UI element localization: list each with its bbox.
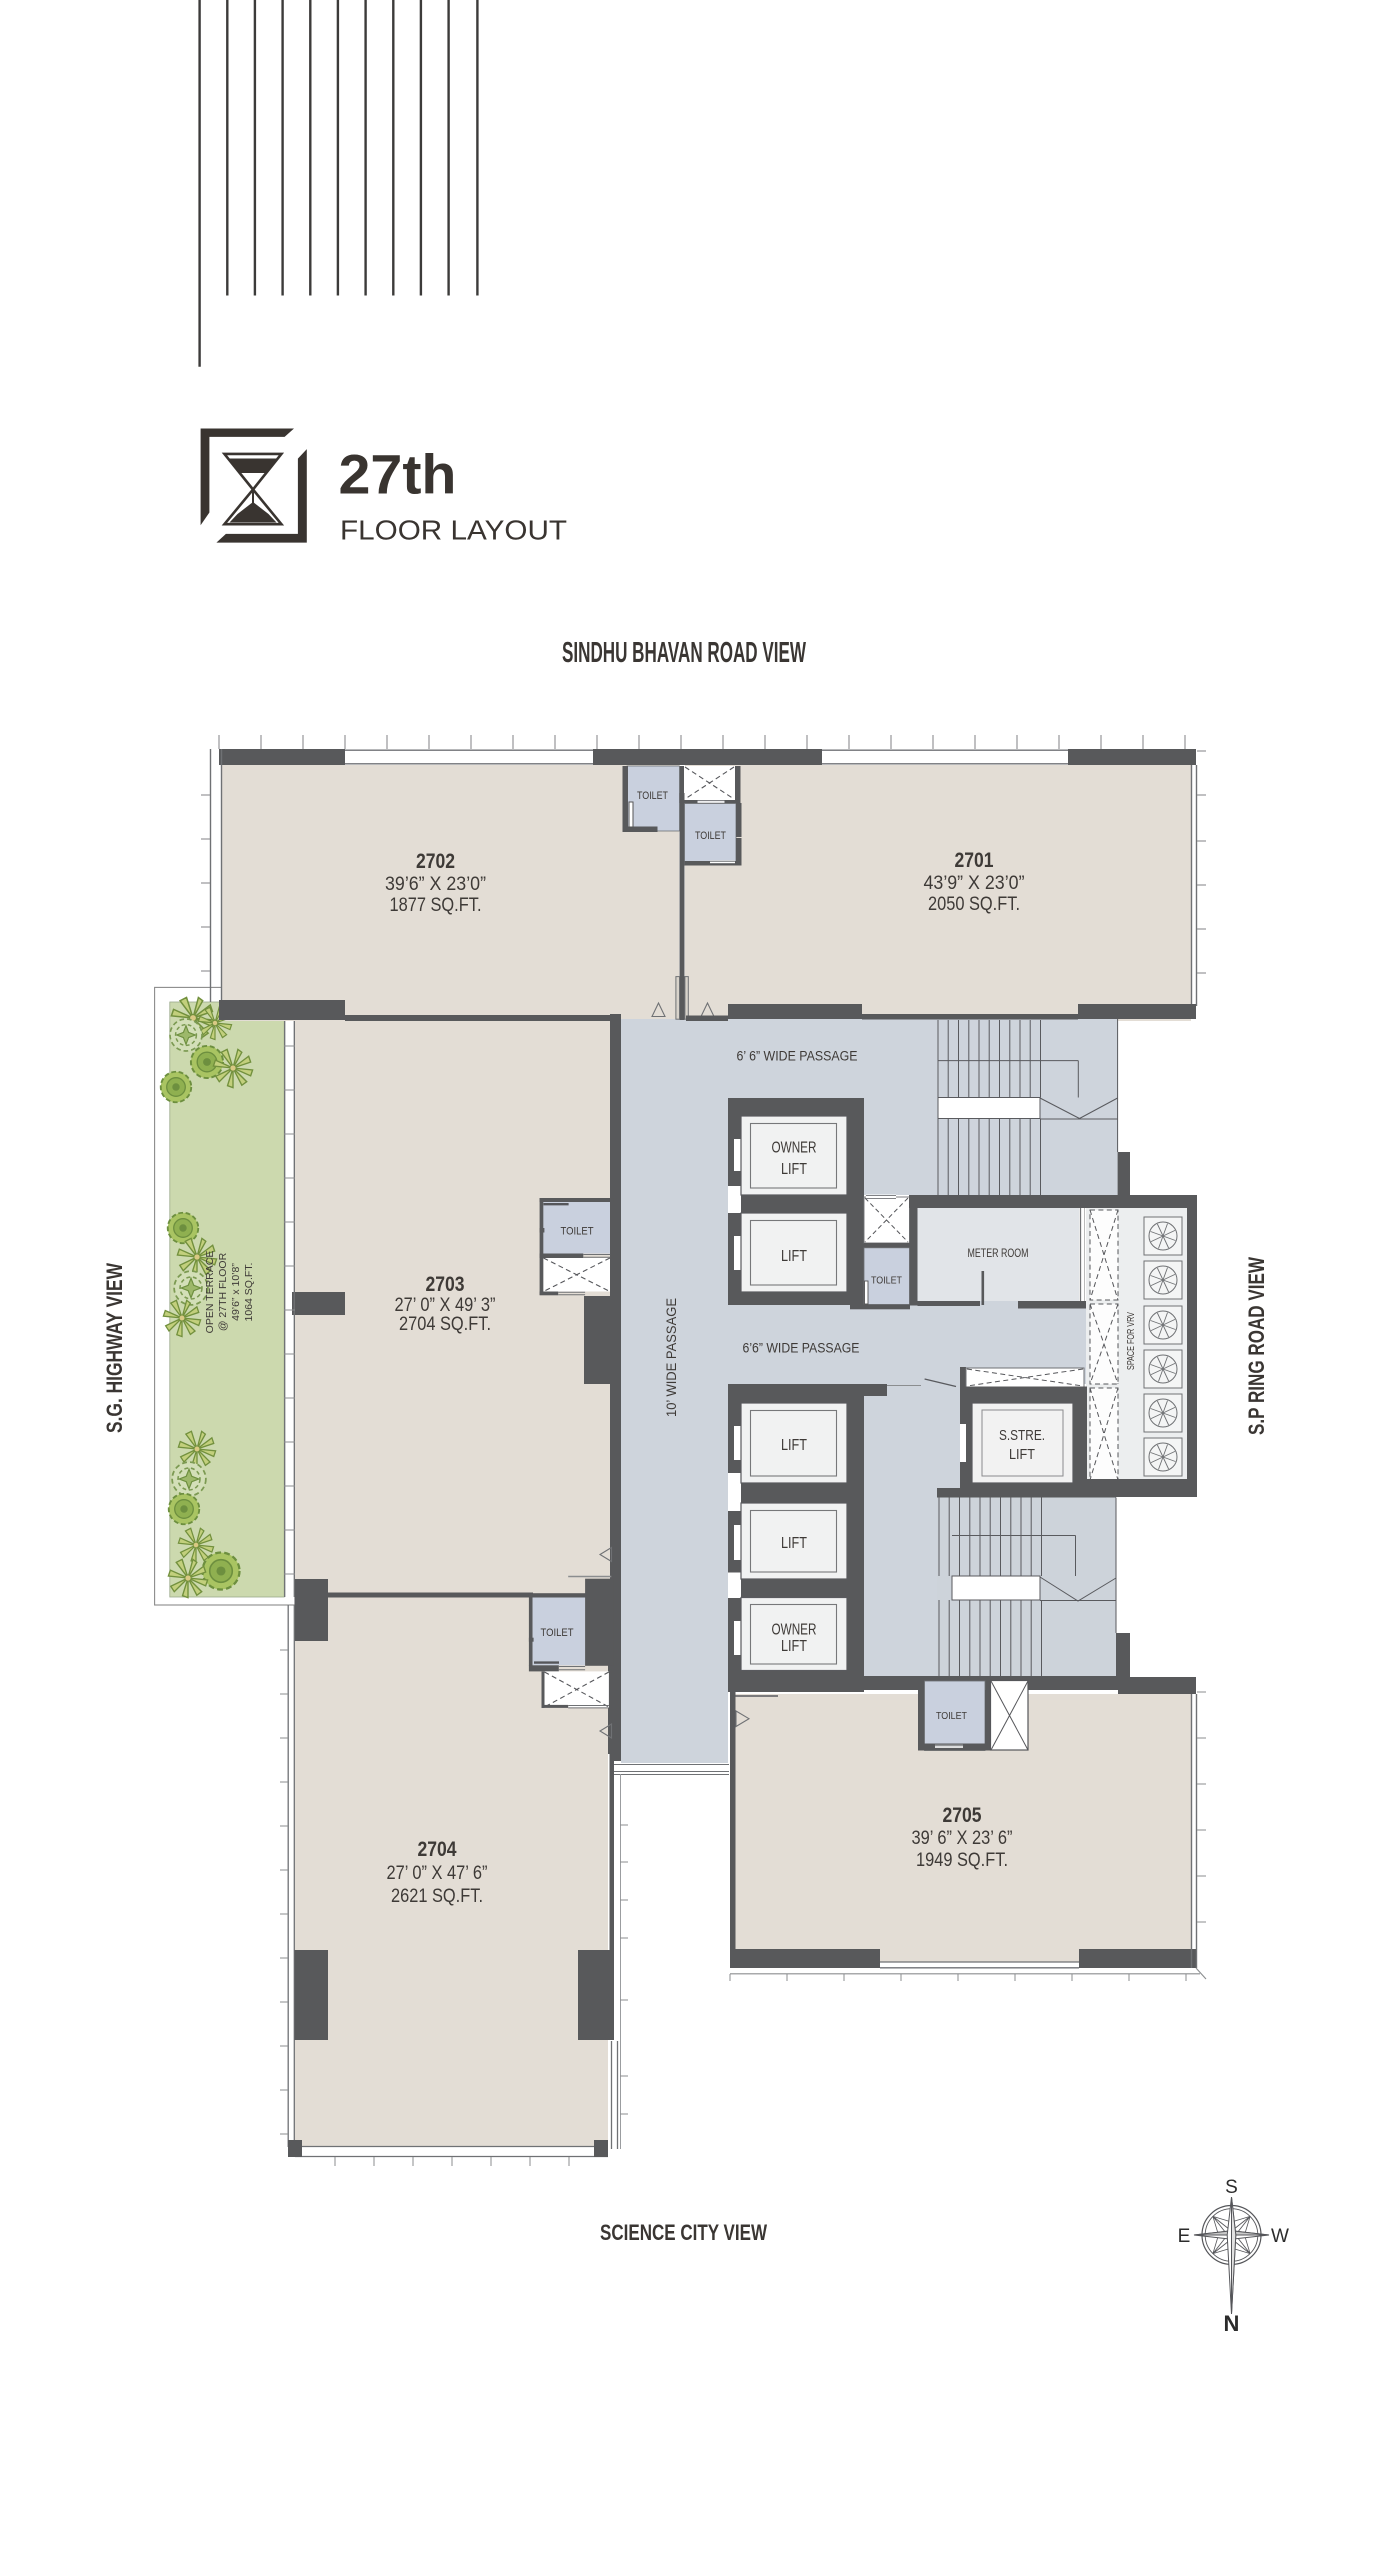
- svg-text:49’6” x 10’8”: 49’6” x 10’8”: [230, 1263, 242, 1321]
- svg-text:39’6” X 23’0”: 39’6” X 23’0”: [385, 874, 486, 895]
- svg-text:39’ 6” X 23’ 6”: 39’ 6” X 23’ 6”: [912, 1828, 1013, 1849]
- svg-text:43’9” X 23’0”: 43’9” X 23’0”: [924, 873, 1025, 894]
- svg-text:2704: 2704: [418, 1838, 457, 1861]
- svg-text:S.G. HIGHWAY VIEW: S.G. HIGHWAY VIEW: [102, 1262, 127, 1433]
- svg-text:27’ 0” X 47’ 6”: 27’ 0” X 47’ 6”: [387, 1863, 488, 1884]
- svg-text:TOILET: TOILET: [936, 1710, 967, 1722]
- svg-text:2702: 2702: [416, 850, 455, 873]
- svg-text:TOILET: TOILET: [871, 1276, 902, 1287]
- svg-text:LIFT: LIFT: [1009, 1447, 1035, 1463]
- svg-text:2701: 2701: [955, 849, 994, 872]
- svg-text:TOILET: TOILET: [561, 1226, 594, 1238]
- svg-text:1949 SQ.FT.: 1949 SQ.FT.: [916, 1850, 1008, 1871]
- svg-text:2621 SQ.FT.: 2621 SQ.FT.: [391, 1886, 483, 1907]
- svg-text:6’ 6” WIDE PASSAGE: 6’ 6” WIDE PASSAGE: [737, 1049, 858, 1064]
- svg-text:E: E: [1178, 2226, 1191, 2247]
- svg-text:W: W: [1271, 2226, 1289, 2247]
- svg-text:2050 SQ.FT.: 2050 SQ.FT.: [928, 894, 1020, 915]
- svg-text:N: N: [1224, 2311, 1240, 2336]
- svg-text:@ 27TH FLOOR: @ 27TH FLOOR: [217, 1252, 229, 1331]
- svg-text:TOILET: TOILET: [695, 830, 726, 842]
- svg-text:S.STRE.: S.STRE.: [999, 1428, 1045, 1444]
- svg-text:TOILET: TOILET: [541, 1627, 574, 1639]
- svg-text:1877 SQ.FT.: 1877 SQ.FT.: [390, 895, 482, 916]
- svg-text:1064 SQ.FT.: 1064 SQ.FT.: [243, 1263, 255, 1322]
- svg-text:27th: 27th: [339, 443, 457, 506]
- svg-text:SCIENCE CITY VIEW: SCIENCE CITY VIEW: [600, 2220, 768, 2245]
- svg-text:LIFT: LIFT: [781, 1161, 807, 1178]
- svg-text:10’ WIDE PASSAGE: 10’ WIDE PASSAGE: [664, 1298, 679, 1417]
- svg-text:6’6” WIDE PASSAGE: 6’6” WIDE PASSAGE: [743, 1341, 860, 1356]
- svg-text:S: S: [1225, 2177, 1238, 2198]
- svg-text:OWNER: OWNER: [772, 1622, 817, 1639]
- svg-text:OPEN TERRACE: OPEN TERRACE: [204, 1251, 216, 1334]
- svg-text:OWNER: OWNER: [772, 1140, 817, 1157]
- svg-text:METER ROOM: METER ROOM: [968, 1248, 1029, 1260]
- svg-text:SINDHU BHAVAN ROAD VIEW: SINDHU BHAVAN ROAD VIEW: [562, 637, 806, 669]
- svg-text:2705: 2705: [943, 1804, 982, 1827]
- svg-text:LIFT: LIFT: [781, 1248, 807, 1265]
- svg-text:LIFT: LIFT: [781, 1535, 807, 1552]
- svg-text:LIFT: LIFT: [781, 1437, 807, 1454]
- svg-text:S.P RING ROAD VIEW: S.P RING ROAD VIEW: [1244, 1256, 1269, 1435]
- svg-text:TOILET: TOILET: [637, 790, 668, 802]
- svg-text:FLOOR LAYOUT: FLOOR LAYOUT: [340, 515, 567, 546]
- svg-text:SPACE FOR VRV: SPACE FOR VRV: [1126, 1312, 1137, 1370]
- svg-text:2703: 2703: [426, 1273, 465, 1296]
- svg-text:LIFT: LIFT: [781, 1638, 807, 1655]
- svg-text:2704 SQ.FT.: 2704 SQ.FT.: [399, 1314, 491, 1335]
- svg-text:27’ 0” X 49’ 3”: 27’ 0” X 49’ 3”: [395, 1295, 496, 1316]
